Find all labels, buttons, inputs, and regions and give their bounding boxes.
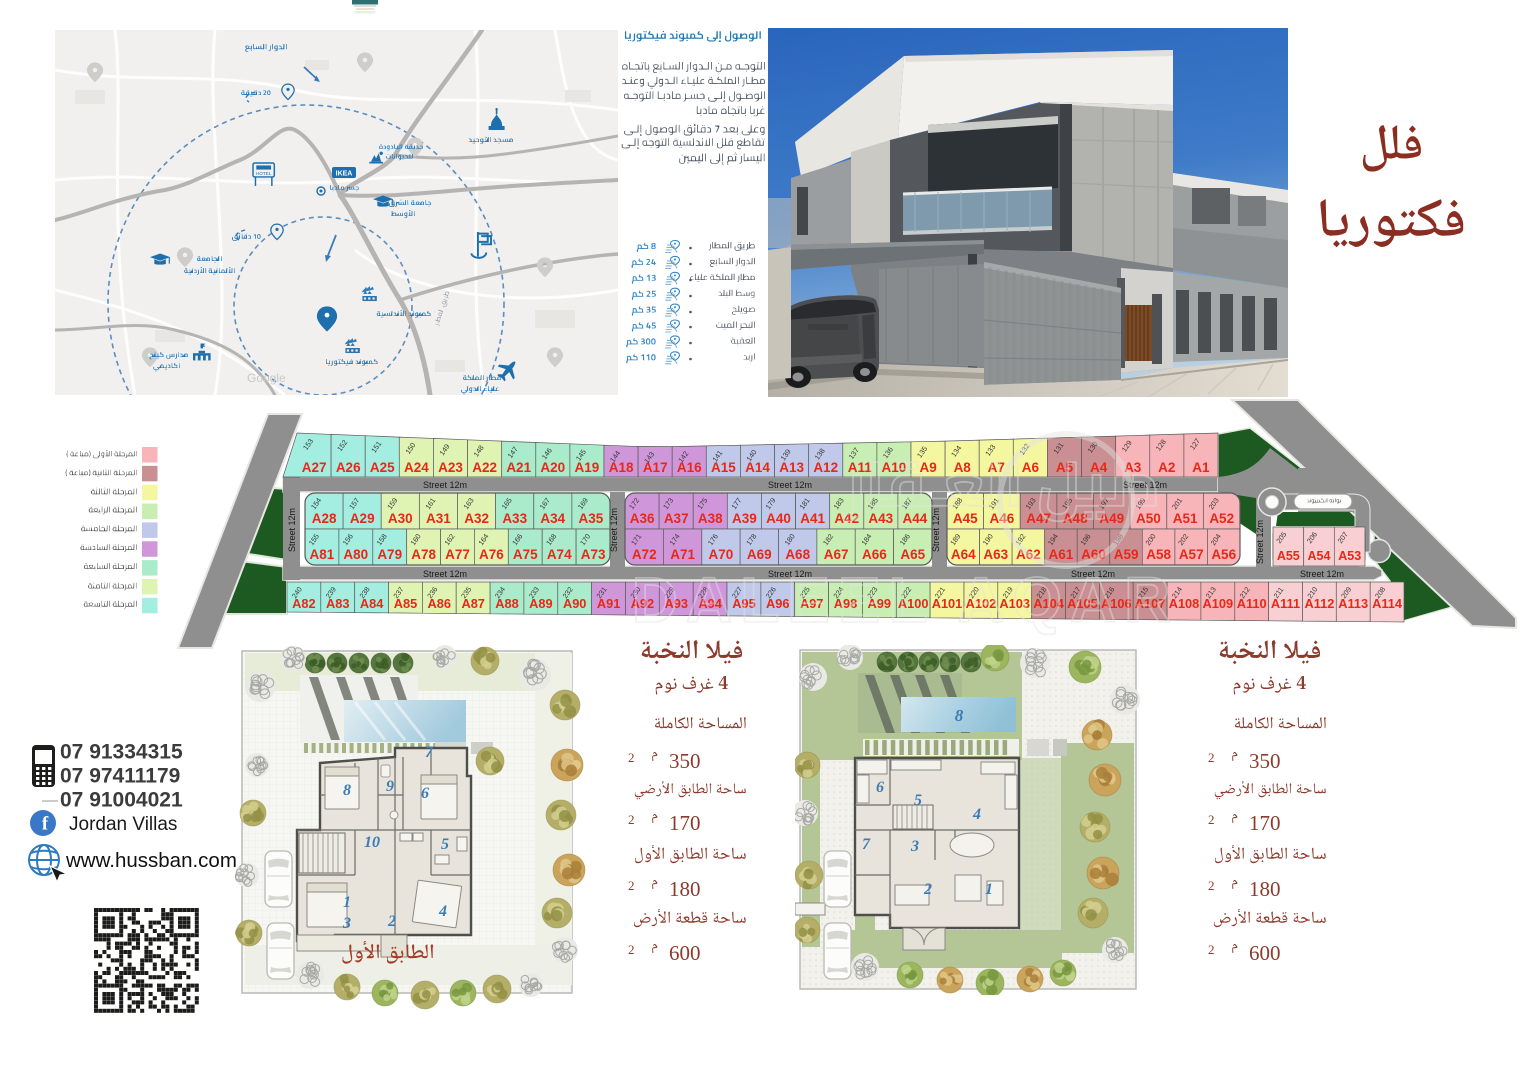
- svg-text:www.hussban.com: www.hussban.com: [65, 849, 237, 872]
- svg-text:A69: A69: [747, 547, 772, 562]
- svg-text:2: 2: [628, 878, 635, 893]
- svg-text:2: 2: [628, 812, 635, 827]
- svg-text:A1: A1: [1192, 460, 1210, 475]
- svg-text:A78: A78: [411, 547, 436, 562]
- svg-text:170: 170: [1249, 811, 1281, 835]
- svg-text:Street 12m: Street 12m: [1255, 520, 1265, 564]
- svg-text:180: 180: [1249, 877, 1281, 901]
- svg-text:3: 3: [910, 838, 919, 855]
- svg-text:A12: A12: [813, 460, 838, 475]
- svg-text:3: 3: [342, 915, 351, 932]
- svg-text:7: 7: [425, 744, 434, 761]
- svg-text:A74: A74: [547, 547, 572, 562]
- svg-text:180: 180: [669, 877, 701, 901]
- svg-text:A43: A43: [868, 511, 893, 526]
- svg-text:A25: A25: [370, 460, 395, 475]
- svg-text:Street 12m: Street 12m: [768, 480, 812, 490]
- svg-text:A75: A75: [513, 547, 538, 562]
- svg-text:A8: A8: [954, 460, 972, 475]
- svg-text:2: 2: [1208, 942, 1215, 957]
- svg-text:A70: A70: [709, 547, 734, 562]
- svg-text:A73: A73: [581, 547, 606, 562]
- svg-text:2: 2: [628, 750, 635, 765]
- svg-text:170: 170: [669, 811, 701, 835]
- svg-text:600: 600: [1249, 941, 1281, 965]
- svg-text:350: 350: [669, 749, 701, 773]
- svg-text:07 91004021: 07 91004021: [60, 789, 183, 812]
- svg-text:2: 2: [1208, 878, 1215, 893]
- svg-text:2: 2: [923, 881, 932, 898]
- svg-text:A11: A11: [848, 460, 873, 475]
- svg-text:A66: A66: [862, 547, 887, 562]
- svg-text:A23: A23: [438, 460, 463, 475]
- svg-text:4: 4: [972, 806, 981, 823]
- svg-text:IKEA: IKEA: [336, 171, 353, 178]
- svg-text:8: 8: [955, 706, 964, 725]
- svg-text:2: 2: [628, 942, 635, 957]
- svg-text:A35: A35: [579, 511, 604, 526]
- svg-text:A55: A55: [1277, 549, 1300, 563]
- svg-text:A57: A57: [1179, 547, 1204, 562]
- svg-text:A20: A20: [540, 460, 565, 475]
- svg-text:A41: A41: [800, 511, 825, 526]
- svg-text:A59: A59: [1114, 547, 1139, 562]
- svg-text:A14: A14: [745, 460, 770, 475]
- svg-text:Street 12m: Street 12m: [931, 508, 941, 552]
- svg-text:A80: A80: [343, 547, 368, 562]
- svg-text:A51: A51: [1173, 511, 1198, 526]
- svg-text:A30: A30: [388, 511, 413, 526]
- svg-text:A31: A31: [426, 511, 451, 526]
- svg-text:A45: A45: [953, 511, 978, 526]
- svg-text:A34: A34: [540, 511, 565, 526]
- svg-text:A19: A19: [575, 460, 600, 475]
- svg-text:A54: A54: [1308, 549, 1331, 563]
- svg-text:A37: A37: [664, 511, 689, 526]
- svg-text:f: f: [42, 814, 49, 835]
- svg-text:10: 10: [364, 834, 380, 851]
- svg-text:600: 600: [669, 941, 701, 965]
- svg-text:1: 1: [343, 894, 351, 911]
- svg-text:07 91334315: 07 91334315: [60, 741, 183, 764]
- svg-text:A28: A28: [312, 511, 337, 526]
- svg-text:A6: A6: [1022, 460, 1040, 475]
- svg-text:A81: A81: [310, 547, 335, 562]
- svg-text:2: 2: [1208, 812, 1215, 827]
- svg-text:A21: A21: [506, 460, 531, 475]
- svg-text:1: 1: [985, 881, 993, 898]
- svg-text:6: 6: [876, 779, 884, 796]
- svg-text:A72: A72: [632, 547, 657, 562]
- svg-text:A76: A76: [479, 547, 504, 562]
- svg-text:2: 2: [387, 913, 396, 930]
- svg-text:7: 7: [862, 836, 871, 853]
- svg-text:Street 12m: Street 12m: [423, 480, 467, 490]
- svg-text:A53: A53: [1338, 549, 1361, 563]
- svg-text:4: 4: [438, 903, 447, 920]
- svg-text:6: 6: [421, 785, 429, 802]
- svg-text:A27: A27: [302, 460, 327, 475]
- svg-text:A26: A26: [336, 460, 361, 475]
- svg-text:A24: A24: [404, 460, 429, 475]
- svg-text:DALEEL AQAR: DALEEL AQAR: [632, 564, 1179, 636]
- svg-text:A29: A29: [350, 511, 375, 526]
- svg-text:2: 2: [1208, 750, 1215, 765]
- svg-text:9: 9: [386, 778, 394, 795]
- svg-text:A9: A9: [919, 460, 936, 475]
- svg-text:8: 8: [343, 782, 351, 799]
- svg-text:A38: A38: [698, 511, 723, 526]
- svg-text:5: 5: [914, 792, 922, 809]
- svg-text:A77: A77: [445, 547, 470, 562]
- svg-text:Google: Google: [247, 371, 286, 385]
- svg-text:A56: A56: [1211, 547, 1236, 562]
- svg-text:A67: A67: [824, 547, 849, 562]
- svg-text:A39: A39: [732, 511, 757, 526]
- svg-text:A64: A64: [951, 547, 976, 562]
- svg-text:A71: A71: [670, 547, 695, 562]
- svg-text:A50: A50: [1136, 511, 1161, 526]
- svg-text:Street 12m: Street 12m: [423, 569, 467, 579]
- svg-text:A2: A2: [1158, 460, 1175, 475]
- svg-text:Jordan Villas: Jordan Villas: [69, 814, 177, 835]
- svg-text:Street 12m: Street 12m: [287, 508, 297, 552]
- svg-text:A63: A63: [983, 547, 1008, 562]
- svg-text:A4: A4: [1090, 460, 1108, 475]
- svg-text:A65: A65: [900, 547, 925, 562]
- svg-text:HOTEL: HOTEL: [256, 171, 272, 176]
- svg-text:350: 350: [1249, 749, 1281, 773]
- svg-text:07 97411179: 07 97411179: [60, 765, 180, 788]
- svg-text:A68: A68: [785, 547, 810, 562]
- svg-text:Street 12m: Street 12m: [1300, 569, 1344, 579]
- svg-text:A58: A58: [1146, 547, 1171, 562]
- svg-text:A36: A36: [630, 511, 655, 526]
- svg-text:A33: A33: [502, 511, 527, 526]
- svg-text:A52: A52: [1209, 511, 1234, 526]
- svg-text:A61: A61: [1049, 547, 1074, 562]
- svg-text:A40: A40: [766, 511, 791, 526]
- svg-text:A22: A22: [472, 460, 497, 475]
- svg-text:A44: A44: [903, 511, 928, 526]
- svg-text:Street 12m: Street 12m: [609, 508, 619, 552]
- svg-text:A79: A79: [377, 547, 402, 562]
- svg-text:5: 5: [441, 836, 449, 853]
- svg-text:A13: A13: [779, 460, 804, 475]
- svg-text:A32: A32: [464, 511, 489, 526]
